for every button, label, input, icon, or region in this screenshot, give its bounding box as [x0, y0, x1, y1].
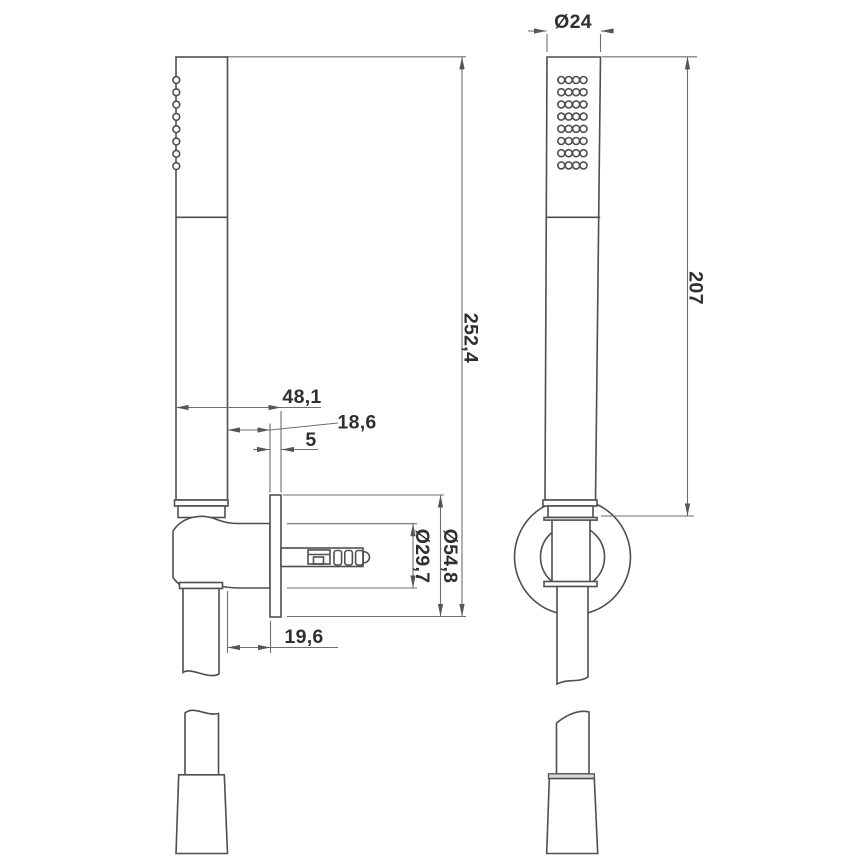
- dim-label-plate-thickness: 5: [305, 429, 316, 451]
- handle-cap-front: [543, 500, 597, 506]
- dim-plate-thickness: 5: [253, 429, 318, 451]
- dim-hose-to-plate: 19,6: [228, 591, 339, 653]
- dim-label-escutcheon-diameter: Ø54,8: [439, 529, 461, 584]
- dim-label-head-diameter: Ø24: [554, 11, 592, 33]
- dim-handset-length: 207: [601, 57, 707, 516]
- dim-label-hose-to-plate: 19,6: [284, 626, 323, 648]
- dim-label-boss-diameter: Ø29,7: [411, 529, 433, 584]
- hose-collar-side: [180, 583, 223, 589]
- hose-end-side: [176, 710, 228, 853]
- dim-handle-to-plate: 18,6: [228, 412, 377, 493]
- side-view: [173, 57, 370, 854]
- technical-drawing-page: Ø24 207 252,4 48,1 18,6 5 Ø29,7: [0, 0, 868, 868]
- handle-cap-side: [175, 500, 229, 506]
- leader-line: [270, 423, 338, 430]
- hose-front: [557, 587, 588, 685]
- conical-nut-front: [547, 779, 598, 854]
- handle-nut-front: [548, 506, 593, 518]
- expansion-anchor: [281, 548, 370, 567]
- dim-label-overall-length: 252,4: [460, 313, 482, 363]
- dim-head-diameter: Ø24: [528, 11, 614, 52]
- handset-body-side: [176, 57, 228, 500]
- front-view: [515, 57, 631, 854]
- hose-side: [183, 589, 219, 676]
- conical-nut-side: [176, 775, 228, 854]
- dim-label-wall-to-front: 48,1: [282, 386, 321, 408]
- holder-body-side: [173, 516, 270, 589]
- dim-label-handle-to-plate: 18,6: [337, 412, 376, 434]
- hose-end-front: [547, 711, 598, 853]
- shower-set-technical-drawing: Ø24 207 252,4 48,1 18,6 5 Ø29,7: [0, 0, 868, 868]
- dim-label-handset-length: 207: [685, 271, 707, 304]
- clamp-top-flange: [544, 518, 597, 521]
- handset-body-front: [545, 57, 601, 500]
- wall-plate-side: [270, 495, 281, 617]
